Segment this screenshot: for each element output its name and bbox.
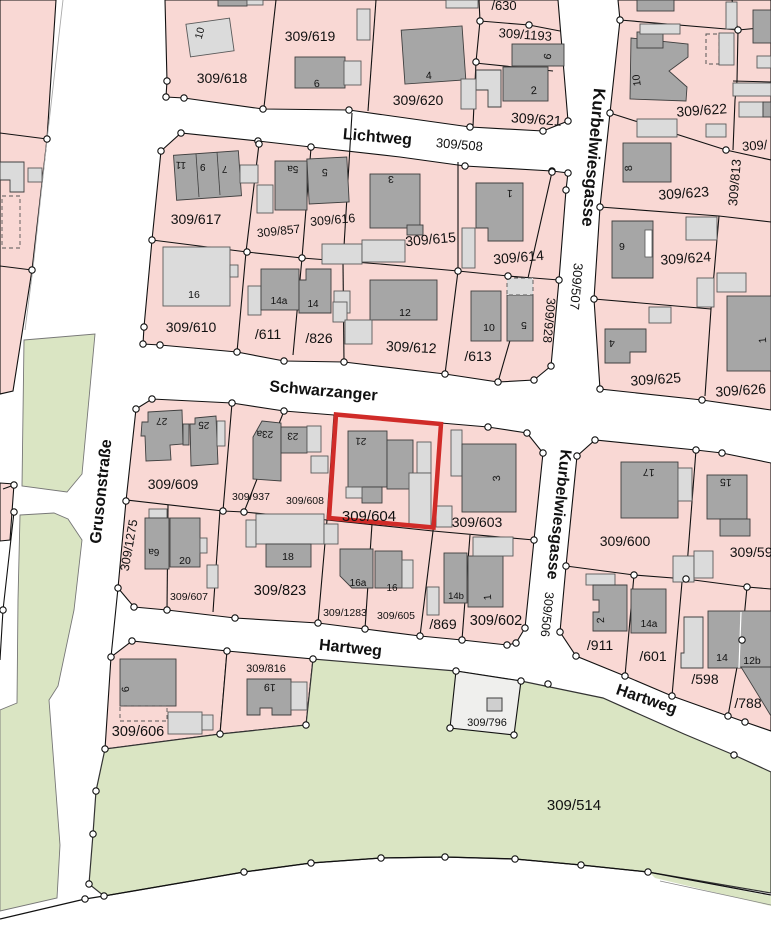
svg-text:17: 17	[643, 466, 655, 479]
svg-text:309/612: 309/612	[386, 338, 438, 357]
svg-text:25: 25	[198, 419, 210, 431]
svg-text:3: 3	[388, 173, 394, 185]
svg-text:309/823: 309/823	[254, 583, 306, 599]
svg-text:309/608: 309/608	[286, 495, 324, 507]
svg-text:309/: 309/	[742, 137, 769, 154]
svg-text:309/606: 309/606	[112, 724, 164, 740]
svg-text:23: 23	[287, 430, 299, 442]
svg-text:1: 1	[757, 337, 769, 344]
svg-text:4: 4	[609, 337, 615, 349]
svg-text:18: 18	[282, 551, 294, 563]
svg-text:6: 6	[619, 240, 625, 252]
svg-text:309/602: 309/602	[470, 613, 522, 629]
svg-text:14: 14	[307, 299, 319, 310]
svg-text:/601: /601	[639, 648, 666, 664]
svg-text:309/620: 309/620	[393, 92, 444, 108]
svg-text:11: 11	[175, 159, 186, 171]
svg-text:/788: /788	[734, 695, 761, 711]
svg-text:309/619: 309/619	[285, 28, 336, 44]
svg-text:5: 5	[521, 319, 527, 331]
svg-text:309/605: 309/605	[377, 610, 415, 622]
svg-text:16: 16	[386, 583, 398, 594]
svg-text:14: 14	[716, 652, 728, 664]
svg-text:/911: /911	[587, 637, 613, 653]
svg-text:7: 7	[221, 163, 228, 174]
svg-text:/630: /630	[491, 0, 516, 13]
svg-text:2: 2	[595, 617, 607, 624]
svg-text:4: 4	[425, 70, 432, 82]
svg-text:15: 15	[720, 476, 732, 489]
svg-text:12: 12	[399, 307, 411, 319]
svg-text:309/609: 309/609	[148, 476, 199, 492]
svg-text:309/514: 309/514	[547, 797, 601, 814]
svg-text:14b: 14b	[448, 591, 464, 602]
svg-text:14a: 14a	[271, 296, 288, 307]
svg-text:12b: 12b	[743, 655, 761, 667]
svg-text:23a: 23a	[256, 428, 274, 440]
svg-text:8: 8	[623, 165, 635, 172]
svg-text:/613: /613	[464, 348, 491, 364]
svg-text:309/599: 309/599	[730, 544, 771, 560]
svg-text:10: 10	[630, 74, 643, 87]
svg-text:309/816: 309/816	[246, 663, 286, 675]
svg-text:14a: 14a	[641, 619, 658, 630]
svg-text:309/603: 309/603	[452, 514, 503, 530]
svg-text:309/607: 309/607	[170, 591, 208, 603]
svg-text:/598: /598	[691, 671, 718, 687]
svg-text:20: 20	[179, 555, 191, 567]
svg-text:5a: 5a	[287, 163, 299, 175]
svg-text:/826: /826	[305, 330, 332, 346]
svg-text:10: 10	[483, 322, 495, 334]
svg-text:27: 27	[156, 415, 168, 427]
svg-text:309/600: 309/600	[600, 533, 651, 549]
svg-text:16a: 16a	[350, 578, 367, 589]
svg-text:19: 19	[264, 681, 276, 694]
svg-text:309/604: 309/604	[342, 508, 396, 525]
svg-text:1: 1	[482, 594, 494, 601]
svg-text:6a: 6a	[148, 546, 160, 558]
svg-text:3: 3	[491, 475, 503, 482]
svg-text:21: 21	[355, 435, 367, 447]
svg-text:2: 2	[530, 85, 537, 97]
svg-text:/869: /869	[429, 616, 456, 632]
svg-text:6: 6	[120, 686, 132, 693]
svg-text:309/618: 309/618	[197, 70, 248, 86]
svg-text:16: 16	[188, 289, 200, 301]
svg-text:309/1283: 309/1283	[323, 607, 367, 619]
svg-text:309/610: 309/610	[166, 319, 217, 335]
svg-text:309/796: 309/796	[467, 717, 507, 729]
svg-text:/611: /611	[255, 326, 281, 342]
svg-text:309/937: 309/937	[232, 491, 270, 503]
svg-text:5: 5	[321, 166, 328, 178]
svg-text:1: 1	[506, 187, 513, 199]
svg-text:9: 9	[199, 161, 206, 172]
svg-text:6: 6	[313, 78, 320, 90]
svg-text:309/617: 309/617	[171, 211, 222, 227]
